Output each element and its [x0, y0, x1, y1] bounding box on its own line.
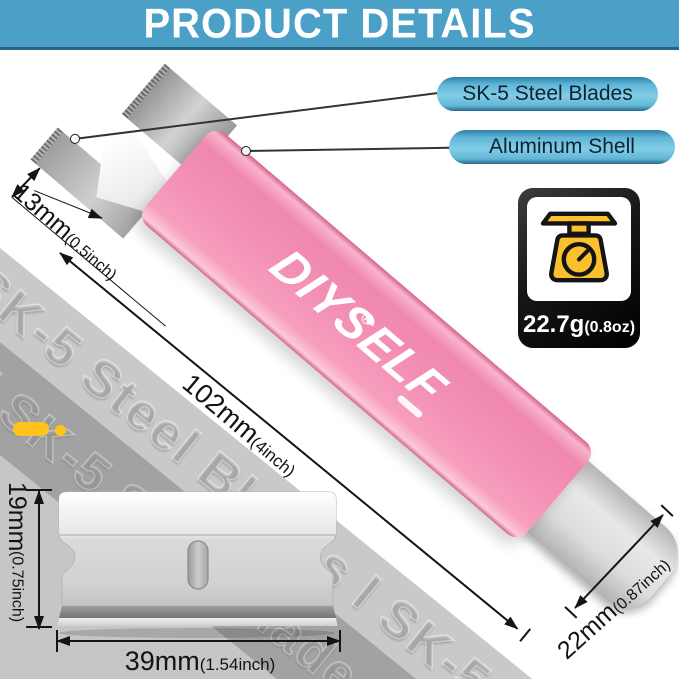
callout-pill-aluminum-shell: Aluminum Shell	[449, 130, 675, 164]
blade-serration	[30, 127, 63, 163]
circle-marker	[241, 146, 251, 156]
dim-19mm-line	[38, 491, 40, 629]
weight-ounces: (0.8oz)	[584, 319, 635, 337]
yellow-dot-decoration	[55, 425, 66, 436]
callout-label: SK-5 Steel Blades	[462, 82, 632, 106]
yellow-dash-decoration	[13, 422, 49, 436]
weight-grams: 22.7g	[523, 311, 584, 339]
brand-logo: DIYSELF®	[221, 206, 497, 447]
dim-value: 39mm	[125, 646, 200, 676]
circle-marker	[69, 133, 80, 144]
dim-39mm-tick-left	[56, 630, 58, 652]
arrowhead	[504, 617, 521, 634]
end-tick	[519, 628, 531, 642]
weight-badge: 22.7g(0.8oz)	[518, 188, 640, 348]
dim-19mm-label: 19mm(0.75inch)	[2, 482, 31, 642]
blade-bevel	[59, 606, 336, 618]
blade-serration	[122, 64, 170, 119]
arrowhead	[56, 636, 70, 646]
scale-icon	[539, 205, 619, 293]
arrowhead	[34, 490, 44, 504]
header-bar: PRODUCT DETAILS	[0, 0, 679, 50]
blade-cutting-edge	[58, 618, 338, 626]
blade-shadow	[59, 628, 335, 638]
dim-39mm-line	[57, 640, 340, 642]
callout-pill-steel-blades: SK-5 Steel Blades	[437, 77, 658, 111]
blade-back-bar	[59, 492, 336, 535]
razor-blade-illustration	[55, 486, 340, 640]
weight-icon-panel	[527, 197, 631, 301]
dim-39mm-tick-right	[339, 630, 341, 652]
callout-line-shell	[245, 147, 450, 152]
dim-value: 19mm	[2, 482, 31, 551]
blade-slot	[188, 541, 208, 589]
product-details-infographic: l SK-5 Steel Blades l SK-5 Steel l SK-5 …	[0, 0, 679, 679]
dim-value-inch: (0.75inch)	[8, 551, 26, 622]
dim-value-inch: (1.54inch)	[200, 655, 276, 674]
brand-name: DIYSELF	[259, 239, 459, 413]
weight-value: 22.7g(0.8oz)	[518, 311, 640, 339]
arrowhead	[571, 595, 588, 612]
callout-label: Aluminum Shell	[489, 135, 635, 159]
page-title: PRODUCT DETAILS	[143, 1, 535, 47]
dim-39mm-label: 39mm(1.54inch)	[118, 646, 282, 677]
